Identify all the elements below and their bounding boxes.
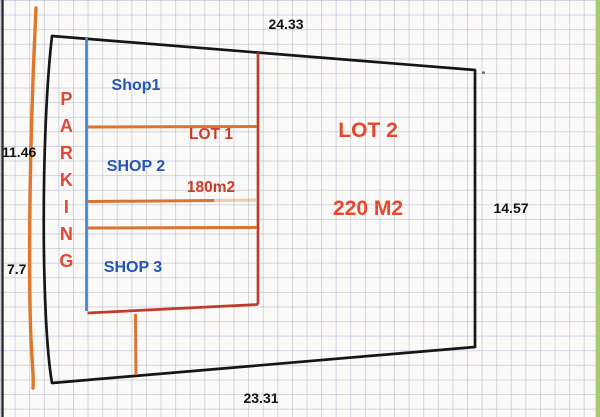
shop2-label: SHOP 2 bbox=[107, 158, 165, 176]
lot1-label: LOT 1 180m2 bbox=[187, 90, 235, 233]
lot2-area: 220 M2 bbox=[333, 196, 403, 222]
parking-label: PARKING bbox=[56, 89, 77, 278]
lot1-area: 180m2 bbox=[187, 179, 235, 197]
dimension-top: 24.33 bbox=[268, 16, 303, 32]
lot1-name: LOT 1 bbox=[187, 125, 235, 143]
lot2-name: LOT 2 bbox=[333, 118, 403, 144]
lot-outline bbox=[44, 36, 475, 383]
corner-tick-mark bbox=[482, 72, 485, 74]
dimension-left-upper: 11.46 bbox=[2, 144, 36, 160]
shop1-label: Shop1 bbox=[112, 77, 161, 95]
site-plan-canvas: 24.33 11.46 7.7 14.57 23.31 PARKING Shop… bbox=[0, 0, 600, 417]
dimension-bottom: 23.31 bbox=[243, 390, 278, 406]
entrance-divider-line bbox=[136, 314, 137, 375]
dimension-left-lower: 7.7 bbox=[7, 261, 26, 277]
lot1-bottom-boundary-line bbox=[88, 305, 259, 314]
dimension-right: 14.57 bbox=[493, 200, 528, 216]
lot2-label: LOT 2 220 M2 bbox=[333, 65, 403, 275]
shop3-label: SHOP 3 bbox=[104, 259, 162, 277]
parking-left-orange-line bbox=[30, 8, 36, 388]
green-edge-strip bbox=[596, 0, 600, 417]
